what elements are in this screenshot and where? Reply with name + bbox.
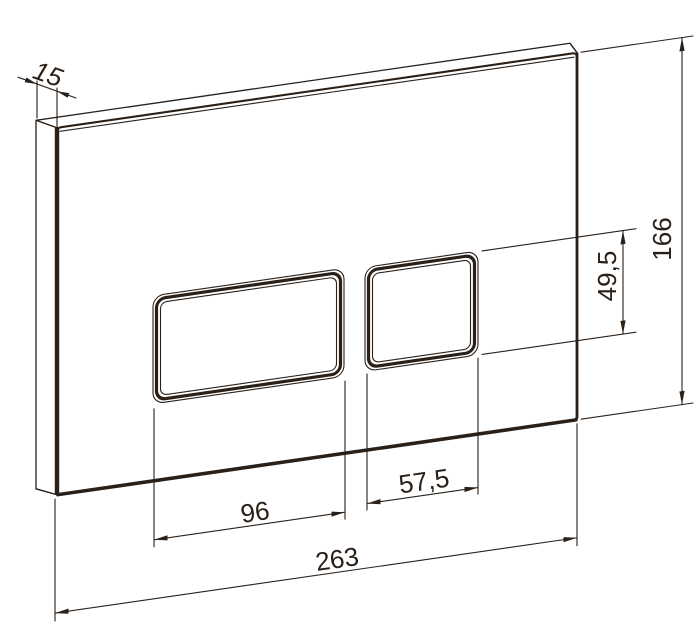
arrowhead-up (679, 37, 684, 51)
flush-plate-body (36, 42, 577, 498)
arrowhead-right (465, 485, 479, 492)
dimension-label-large-button-width: 96 (239, 495, 272, 529)
arrowhead-down (620, 320, 625, 334)
dimension-label-small-button-width: 57,5 (397, 463, 451, 500)
dimension-label-plate-height: 166 (647, 217, 677, 260)
arrowhead-left (154, 535, 168, 542)
plate-top-face (36, 42, 577, 131)
extension-line (482, 229, 636, 251)
arrowhead-right (564, 535, 578, 542)
extension-line (581, 36, 693, 52)
extension-line (482, 332, 636, 354)
small-button-face-outline (373, 260, 471, 363)
large-button-recess-outline (153, 268, 344, 404)
small-flush-button (365, 251, 478, 371)
dimension-label-button-height: 49,5 (592, 251, 622, 302)
dimension-label-thickness: 15 (29, 55, 67, 93)
arrowhead-up (620, 230, 625, 244)
large-flush-button (153, 268, 344, 404)
dimension-plate-width (55, 424, 577, 621)
dimension-labels: 15 166 49,5 96 57,5 263 (29, 55, 677, 577)
arrowhead-down (679, 391, 684, 405)
arrowhead-left (55, 609, 69, 616)
plate-bottom-edge (58, 420, 576, 495)
arrowhead-right (332, 510, 346, 517)
plate-top-bevel-line (60, 57, 574, 131)
arrowhead-left (57, 91, 69, 98)
arrowhead-left (367, 499, 381, 506)
drawing-canvas: 15 166 49,5 96 57,5 263 (0, 0, 700, 634)
dimension-label-plate-width: 263 (313, 541, 360, 577)
plate-front-face (57, 53, 577, 495)
plate-side-bottom-edge (36, 486, 57, 498)
flush-plate-technical-drawing: 15 166 49,5 96 57,5 263 (0, 0, 700, 634)
extension-line (581, 403, 693, 419)
